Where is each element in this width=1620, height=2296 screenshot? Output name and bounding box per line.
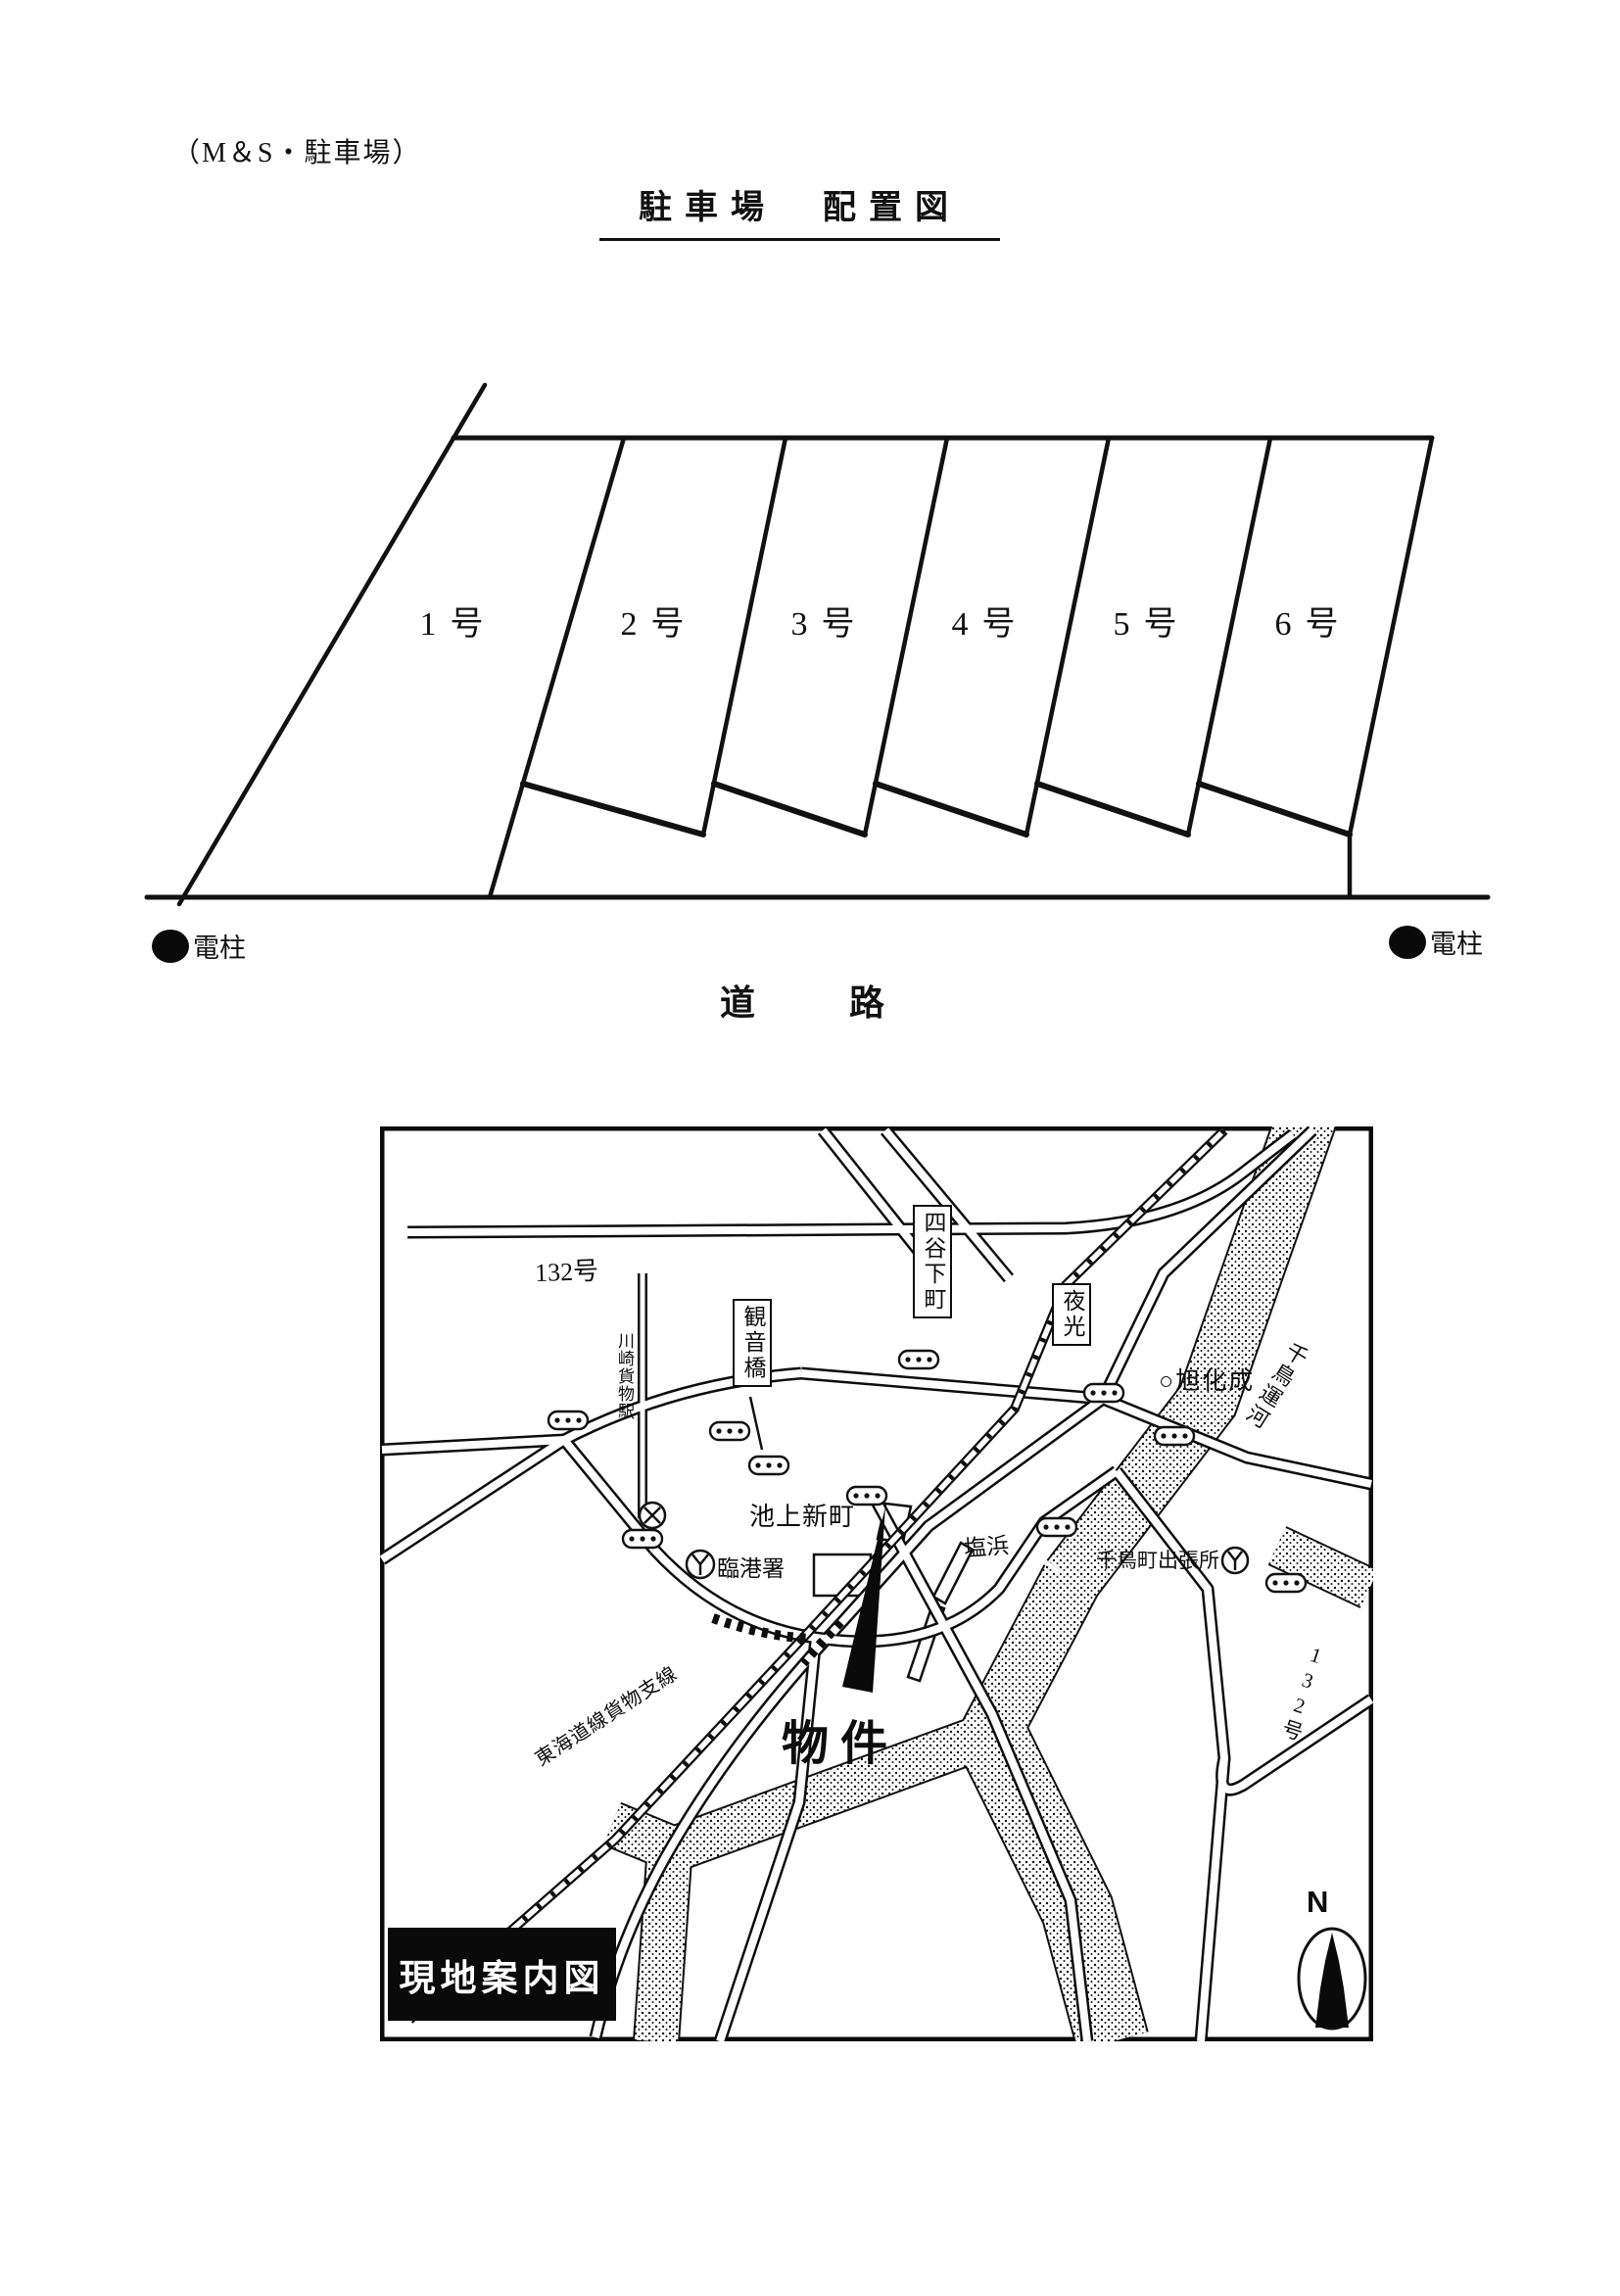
pole-label: 電柱 [193, 927, 246, 965]
signal-marker-dot [640, 1536, 644, 1541]
signal-marker-dot [777, 1462, 782, 1467]
parking-stall-lines [147, 385, 1488, 904]
signal-marker-dot [1272, 1580, 1277, 1585]
signal-marker-dot [1182, 1433, 1187, 1438]
stall-label-3: 3号 [791, 606, 869, 643]
signal-marker-dot [1054, 1524, 1059, 1529]
signal-marker-dot [1090, 1390, 1095, 1395]
signal-marker-dot [650, 1536, 655, 1541]
signal-marker-dot [1283, 1580, 1288, 1585]
pole-icon [152, 930, 189, 963]
map-label-shiohama: 塩浜 [963, 1526, 1010, 1562]
pole-icon [1389, 926, 1426, 959]
signal-marker-dot [916, 1357, 921, 1362]
stall-label-5: 5号 [1114, 606, 1191, 643]
fire-station-icon [687, 1551, 714, 1578]
signal-marker-dot [1171, 1433, 1176, 1438]
stall-label-4: 4号 [952, 606, 1029, 643]
signal-marker-dot [738, 1428, 742, 1433]
map-label-chidoricho-branch: 千鳥町出張所 [1096, 1545, 1219, 1574]
stall-label-2: 2号 [621, 606, 698, 643]
signal-marker-dot [875, 1493, 880, 1498]
signal-marker-dot [716, 1428, 721, 1433]
page-title: 駐車場 配置図 [599, 180, 1000, 241]
map-label-asahi-kasei: ○旭化成 [1159, 1362, 1255, 1397]
signal-marker-dot [1101, 1390, 1106, 1395]
header-note: （M＆S・駐車場） [172, 131, 421, 170]
scanned-document-page: （M＆S・駐車場） 駐車場 配置図 1号 2号 [0, 0, 1620, 2296]
parking-layout-diagram: 1号 2号 3号 4号 5号 6号 [88, 362, 1528, 940]
signal-marker-dot [727, 1428, 732, 1433]
signal-marker-dot [576, 1417, 581, 1422]
parking-stall-labels: 1号 2号 3号 4号 5号 6号 [420, 606, 1353, 643]
signal-marker-dot [1065, 1524, 1070, 1529]
map-label-yotsuya-shimocho: 四谷下町 [913, 1205, 952, 1318]
map-label-property: 物件 [782, 1704, 899, 1773]
signal-marker-dot [565, 1417, 570, 1422]
stall-label-6: 6号 [1275, 606, 1353, 643]
map-label-rinko-station: 臨港署 [717, 1550, 785, 1583]
signal-marker-dot [554, 1417, 559, 1422]
utility-pole-right: 電柱 [1389, 923, 1483, 961]
map-label-kawasaki-freight-station: 川崎貨物駅 [612, 1332, 637, 1420]
signal-marker-dot [755, 1462, 760, 1467]
station-x-icon [640, 1503, 665, 1528]
map-label-kannon-bashi: 観音橋 [733, 1299, 772, 1387]
map-label-yako: 夜光 [1052, 1283, 1091, 1346]
map-drawing [380, 1126, 1373, 2041]
road-label: 道 路 [720, 975, 892, 1026]
fire-station-icon [1222, 1548, 1248, 1573]
location-map: 132号 四谷下町 観音橋 夜光 ○旭化成 千鳥運河 川崎貨物駅 池上新町 臨港… [380, 1126, 1373, 2041]
signal-marker-dot [1043, 1524, 1048, 1529]
map-label-route132-top: 132号 [534, 1251, 598, 1289]
signal-marker-dot [1161, 1433, 1166, 1438]
signal-marker-dot [927, 1357, 931, 1362]
signal-marker-dot [766, 1462, 771, 1467]
map-frame-title: 現地案内図 [388, 1928, 616, 2021]
pole-label: 電柱 [1430, 923, 1483, 961]
north-compass-icon [1299, 1929, 1365, 2029]
signal-marker-dot [629, 1536, 634, 1541]
compass-north-label: N [1307, 1885, 1328, 1920]
map-label-ikegami-shinmachi: 池上新町 [749, 1497, 855, 1533]
signal-marker-dot [905, 1357, 910, 1362]
signal-marker-dot [864, 1493, 869, 1498]
utility-pole-left: 電柱 [152, 927, 246, 965]
signal-marker-dot [1294, 1580, 1299, 1585]
signal-marker-dot [1112, 1390, 1117, 1395]
stall-label-1: 1号 [420, 606, 498, 643]
